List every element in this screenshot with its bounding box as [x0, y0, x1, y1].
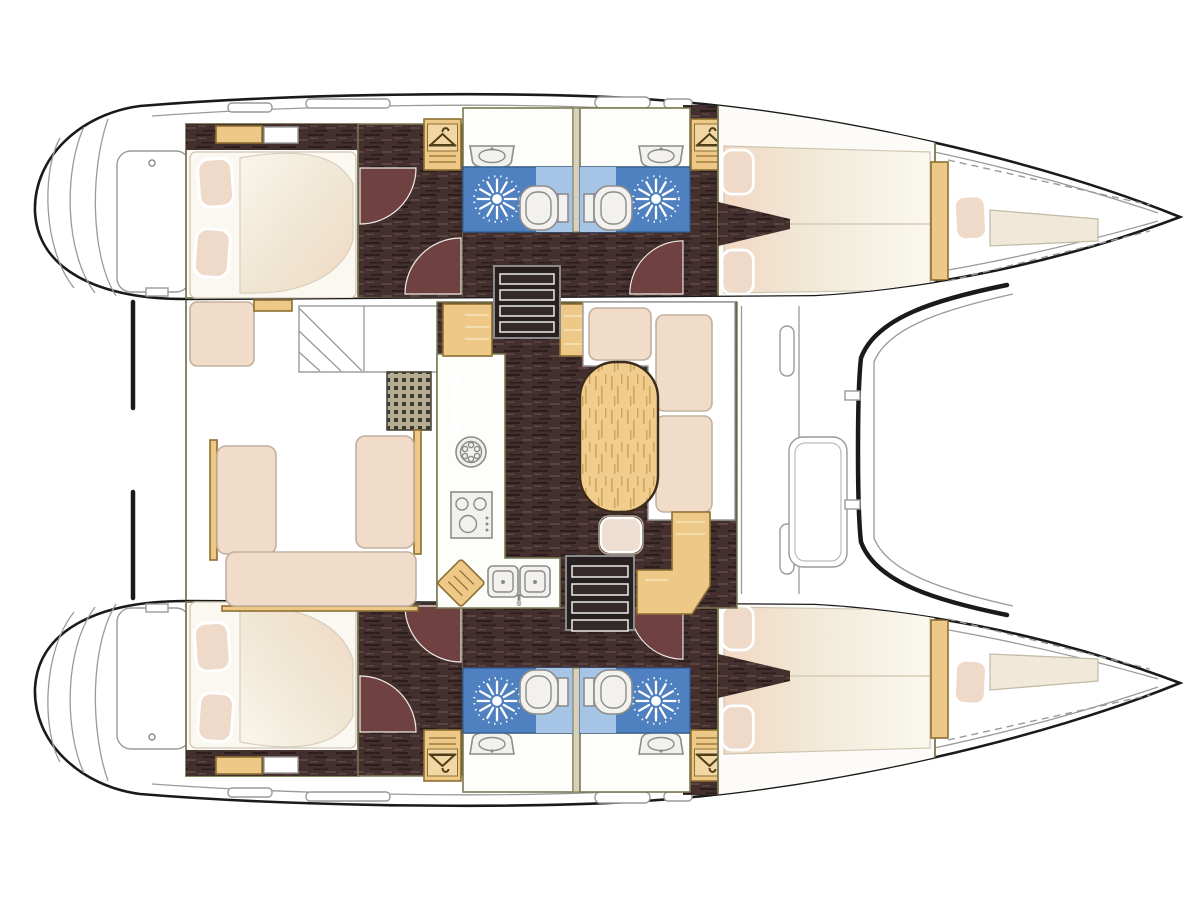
foredeck	[742, 285, 1014, 615]
coachroof-window	[780, 326, 794, 376]
sofa-cushion-right-2	[656, 416, 712, 512]
saloon	[437, 266, 737, 631]
bench-trim	[210, 440, 217, 560]
coachroof-front-inner-line	[874, 294, 1013, 606]
deck-cleat	[845, 500, 860, 509]
helm-seat-back	[254, 300, 292, 311]
bench-trim	[414, 430, 421, 554]
cockpit	[186, 300, 439, 611]
sofa-cushion-right-1	[656, 315, 712, 411]
deck-cleat	[845, 391, 860, 400]
galley-stove	[451, 492, 492, 538]
coachroof-front-edge	[858, 285, 1007, 615]
cockpit-bench	[210, 430, 421, 611]
stool	[599, 516, 643, 554]
bench-cushion-left	[217, 446, 276, 554]
companionway-port	[494, 266, 560, 338]
bench-cushion-aft	[226, 552, 416, 606]
sofa-cushion-top	[589, 308, 651, 360]
floor-plan-canvas: Catamaran interior layout — top-down flo…	[0, 0, 1200, 900]
galley-round-sink	[456, 437, 486, 467]
dining-table	[580, 362, 658, 512]
foredeck-hatch	[789, 437, 847, 567]
helm-seat	[190, 302, 254, 366]
cockpit-steps	[299, 306, 439, 372]
port-hull	[35, 94, 1180, 299]
companionway-starboard	[566, 556, 634, 631]
deck-grating	[387, 372, 431, 430]
bench-cushion-right	[356, 436, 414, 548]
galley-cabinet-left	[443, 304, 492, 356]
floor-plan-stage: Catamaran interior layout — top-down flo…	[0, 0, 1200, 900]
